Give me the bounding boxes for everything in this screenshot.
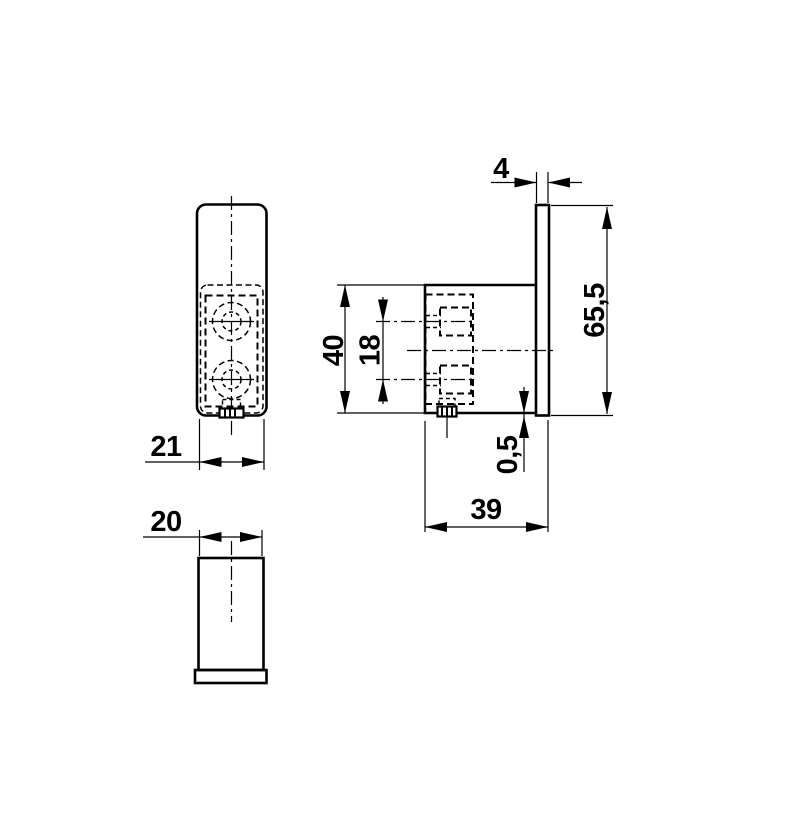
- dimension-total-depth: 39: [425, 420, 548, 532]
- hidden-cavity-side: [426, 295, 474, 405]
- bottom-plate-outline: [195, 670, 267, 683]
- dimension-label: 39: [470, 494, 502, 526]
- dimension-label: 18: [355, 335, 387, 367]
- arrowhead-icon: [602, 207, 612, 229]
- dimension-label: 40: [318, 335, 350, 366]
- clip-hidden-side: [439, 399, 455, 407]
- dimension-label: 0,5: [492, 435, 524, 474]
- dimension-plate-thickness: 4: [491, 153, 582, 203]
- dimension-plate-height: 65,5: [551, 206, 613, 416]
- dimension-label: 20: [150, 506, 181, 538]
- arrowhead-icon: [526, 522, 548, 532]
- bottom-view: [195, 541, 267, 683]
- wall-plate-outline: [536, 205, 549, 416]
- dimension-bottom-offset: 0,5: [492, 387, 529, 474]
- arrowhead-icon: [519, 416, 529, 438]
- arrowhead-icon: [515, 178, 537, 188]
- arrowhead-icon: [425, 522, 447, 532]
- arrowhead-icon: [548, 178, 570, 188]
- arrowhead-icon: [240, 532, 262, 542]
- arrowhead-icon: [242, 457, 264, 467]
- side-view: [376, 205, 553, 438]
- arrowhead-icon: [602, 392, 612, 414]
- dimension-hole-spacing: 18: [355, 297, 389, 404]
- clip-nub: [220, 409, 244, 418]
- dimension-label: 4: [493, 153, 509, 185]
- arrowhead-icon: [519, 391, 529, 413]
- arrowhead-icon: [340, 391, 350, 413]
- arrowhead-icon: [378, 380, 388, 402]
- dimension-label: 21: [150, 431, 182, 463]
- dimension-body-width: 20: [143, 506, 262, 556]
- dimension-label: 65,5: [579, 283, 611, 338]
- dimension-front-width: 21: [145, 419, 264, 470]
- front-view: [197, 196, 267, 437]
- technical-drawing-canvas: 21 20: [0, 0, 800, 822]
- arrowhead-icon: [340, 285, 350, 307]
- arrowhead-icon: [200, 457, 222, 467]
- arrowhead-icon: [200, 532, 222, 542]
- arrowhead-icon: [378, 300, 388, 322]
